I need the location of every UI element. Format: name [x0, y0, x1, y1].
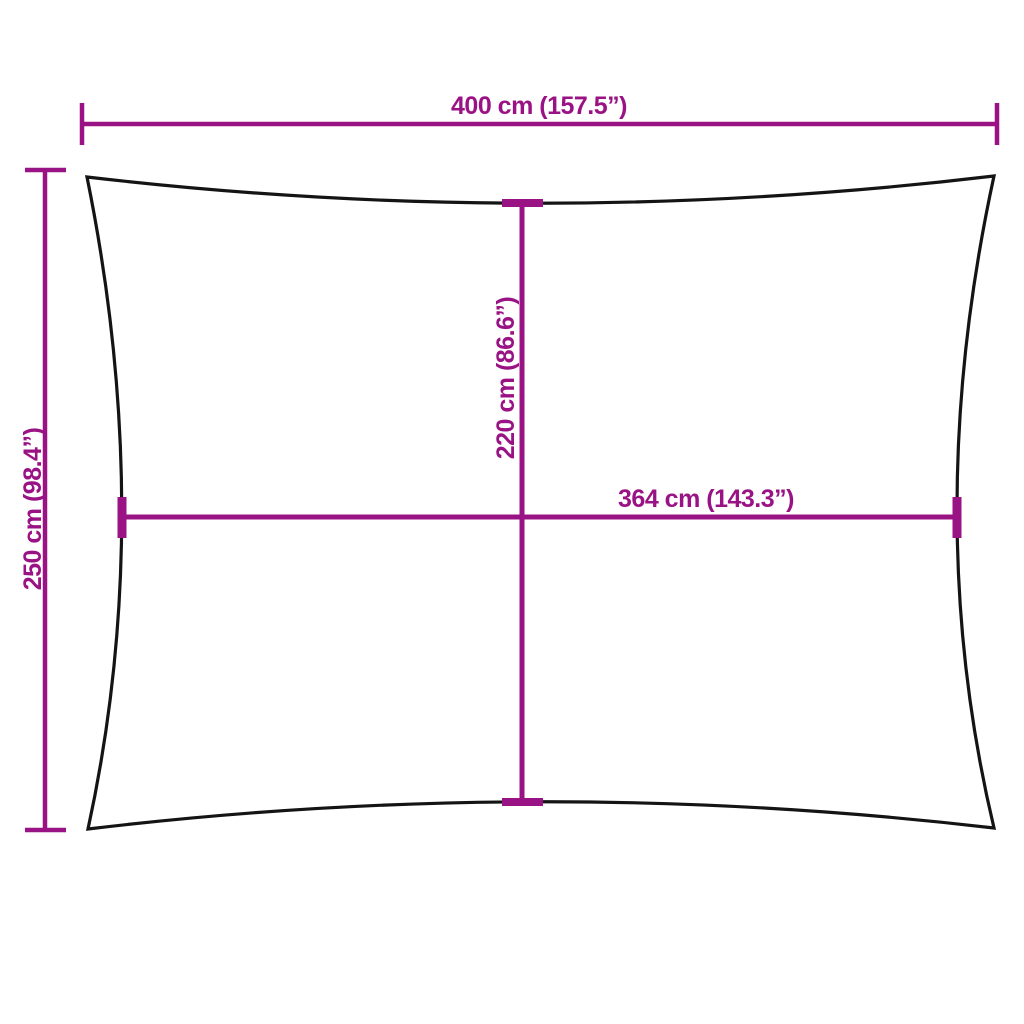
dimension-center-width: 364 cm (143.3”): [122, 485, 957, 538]
shade-sail-outline: [87, 176, 994, 829]
dimension-center-height: 220 cm (86.6”): [492, 203, 543, 802]
dimension-left-height: 250 cm (98.4”): [19, 170, 66, 830]
center-height-label: 220 cm (86.6”): [492, 297, 520, 460]
center-width-label: 364 cm (143.3”): [618, 485, 794, 513]
dimension-top-width: 400 cm (157.5”): [82, 92, 997, 145]
shade-sail-dimension-drawing: 400 cm (157.5”) 250 cm (98.4”) 220 cm (8…: [0, 0, 1024, 1024]
left-height-label: 250 cm (98.4”): [19, 428, 47, 591]
product-dimension-diagram: 400 cm (157.5”) 250 cm (98.4”) 220 cm (8…: [0, 0, 1024, 1024]
top-width-label: 400 cm (157.5”): [451, 92, 627, 120]
